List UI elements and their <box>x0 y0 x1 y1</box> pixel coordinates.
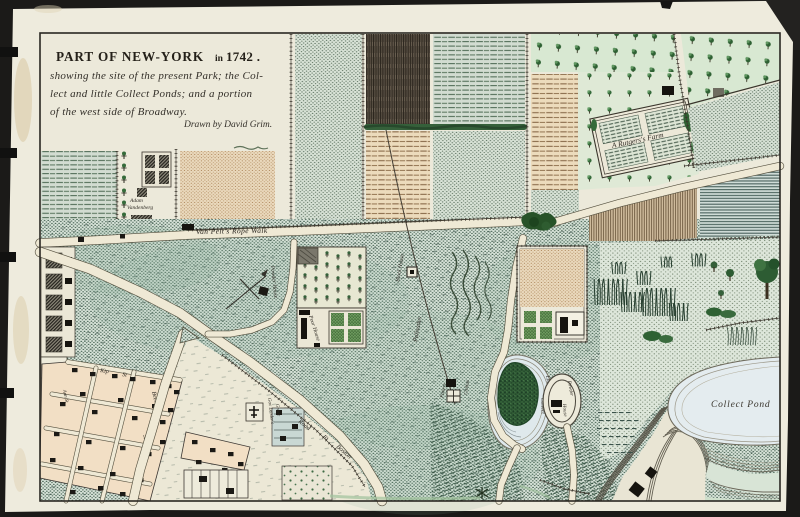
svg-text:Adam: Adam <box>129 198 143 204</box>
svg-text:of the west side of Broadway.: of the west side of Broadway. <box>50 106 187 118</box>
svg-text:1742 .: 1742 . <box>226 49 260 64</box>
svg-text:Drawn by David Grim.: Drawn by David Grim. <box>183 120 272 130</box>
svg-text:Collect Pond: Collect Pond <box>711 400 770 410</box>
svg-text:in: in <box>215 54 224 64</box>
svg-text:Van Pelt's Rope Walk: Van Pelt's Rope Walk <box>196 226 268 236</box>
svg-text:showing the site of the presen: showing the site of the present Park; th… <box>50 70 263 82</box>
svg-text:Vandenberg: Vandenberg <box>127 205 153 211</box>
svg-text:lect and little Collect Ponds;: lect and little Collect Ponds; and a por… <box>50 88 253 100</box>
svg-text:PART OF NEW-YORK: PART OF NEW-YORK <box>56 49 204 64</box>
